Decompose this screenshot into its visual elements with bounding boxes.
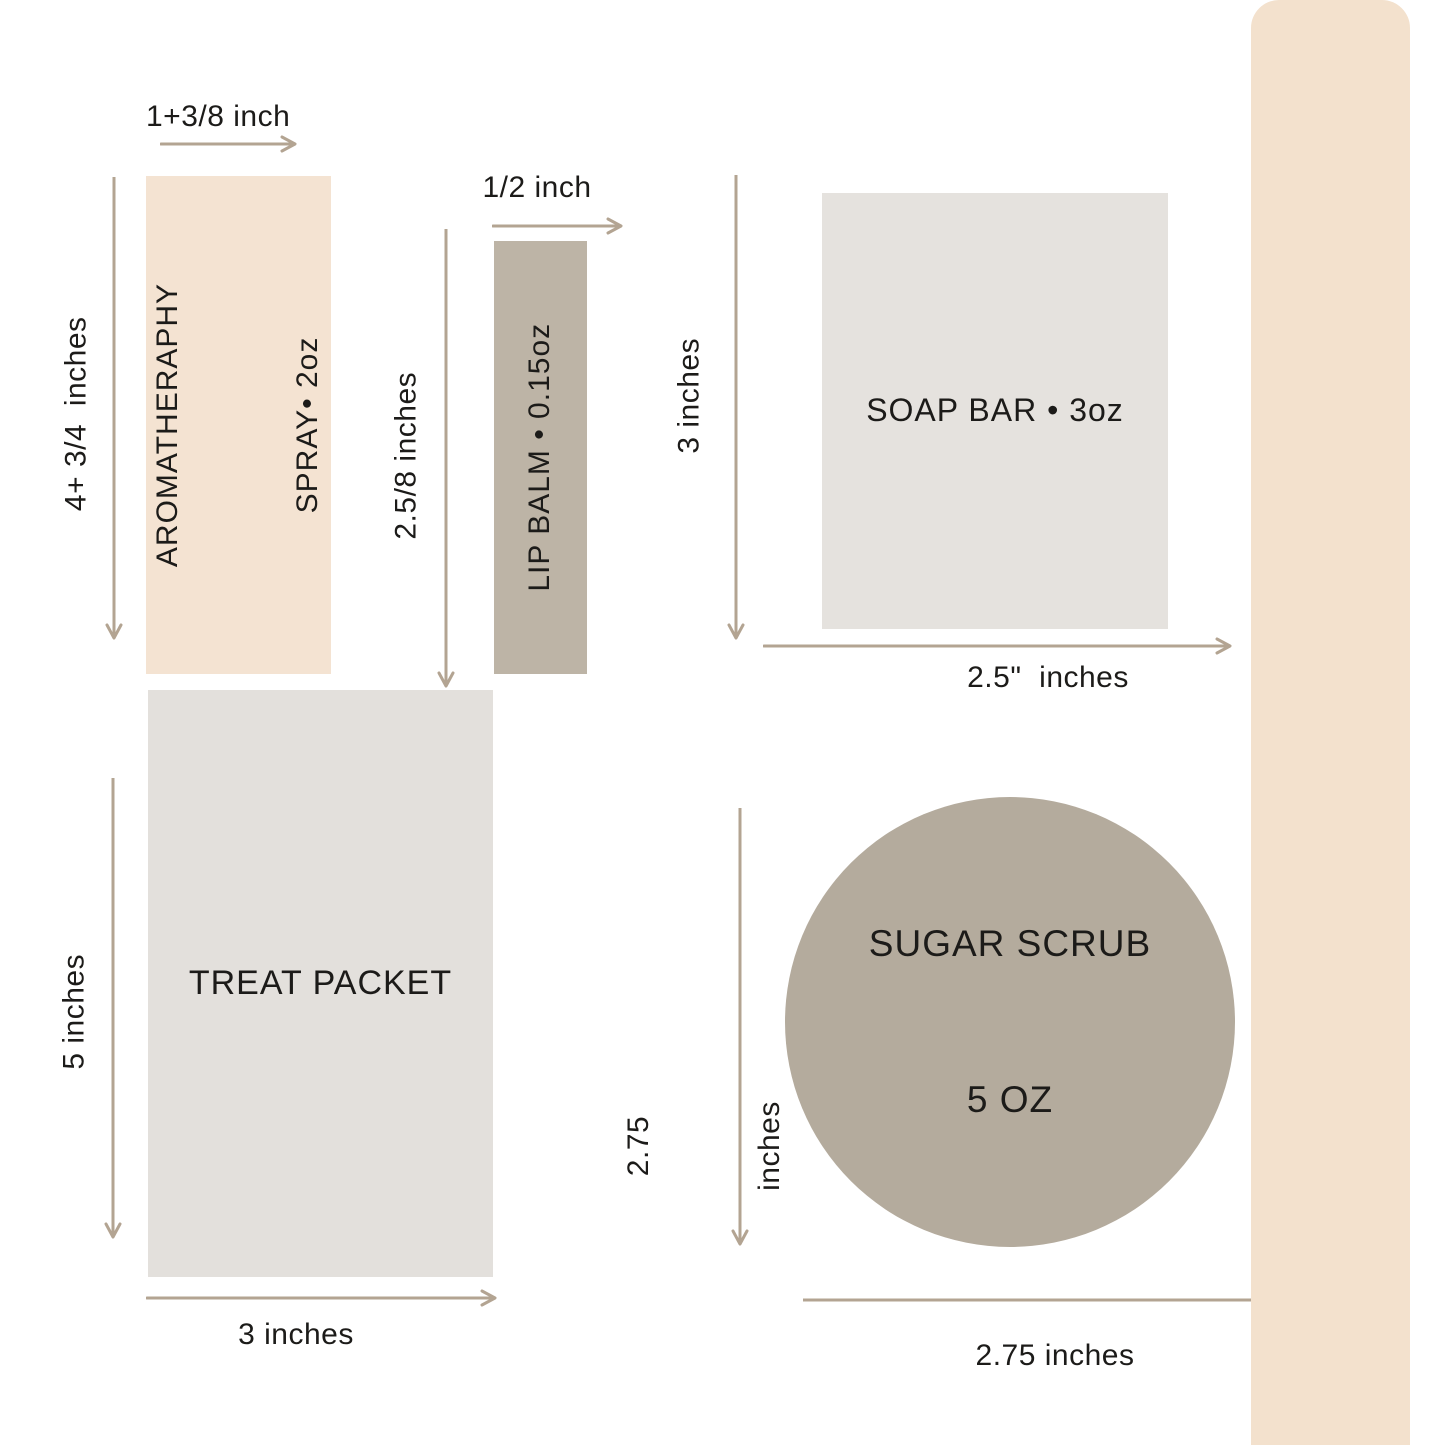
aromatherapy-width-label: 1+3/8 inch [146,99,366,135]
arrow-right-icon [492,216,624,236]
arrow-down-icon [726,175,746,641]
lip-balm-shape: LIP BALM • 0.15oz [494,241,587,674]
soap-bar-height-label: 3 inches [667,276,711,516]
arrow-right-icon [160,134,298,154]
dimensions-sidebar: DIMENSIONS [1251,0,1410,1445]
arrow-down-icon [103,778,123,1240]
sugar-scrub-height-label-line1: 2.75 [617,1036,661,1256]
treat-packet-name: TREAT PACKET [189,957,452,1010]
dimensions-infographic: 1+3/8 inch 4+ 3/4 inches AROMATHERAPHY S… [0,0,1445,1445]
sugar-scrub-width-label: 2.75 inches [905,1338,1205,1374]
sugar-scrub-name: SUGAR SCRUB 5 OZ [869,815,1151,1229]
arrow-right-icon [146,1288,498,1308]
aromatherapy-spray-name: AROMATHERAPHY SPRAY• 2oz [53,283,425,567]
lip-balm-width-label: 1/2 inch [437,170,637,206]
sugar-scrub-height-label-line2: inches [748,1036,792,1256]
aromatherapy-spray-shape: AROMATHERAPHY SPRAY• 2oz [146,176,331,674]
sugar-scrub-name-line2: 5 OZ [869,1074,1151,1126]
aromatherapy-spray-name-line2: SPRAY• 2oz [285,283,332,567]
treat-packet-height-label: 5 inches [52,892,96,1132]
lip-balm-height-label: 2.5/8 inches [384,296,428,616]
arrow-right-icon [763,636,1233,656]
dimension-line-icon [803,1297,1253,1303]
arrow-down-icon [436,229,456,689]
sugar-scrub-name-line1: SUGAR SCRUB [869,918,1151,970]
treat-packet-width-label: 3 inches [171,1317,421,1353]
soap-bar-shape: SOAP BAR • 3oz [822,193,1168,629]
lip-balm-name: LIP BALM • 0.15oz [517,323,564,592]
aromatherapy-spray-name-line1: AROMATHERAPHY [146,283,193,567]
soap-bar-width-label: 2.5" inches [898,660,1198,696]
soap-bar-name: SOAP BAR • 3oz [866,386,1124,436]
sugar-scrub-shape: SUGAR SCRUB 5 OZ [785,797,1235,1247]
treat-packet-shape: TREAT PACKET [148,690,493,1277]
